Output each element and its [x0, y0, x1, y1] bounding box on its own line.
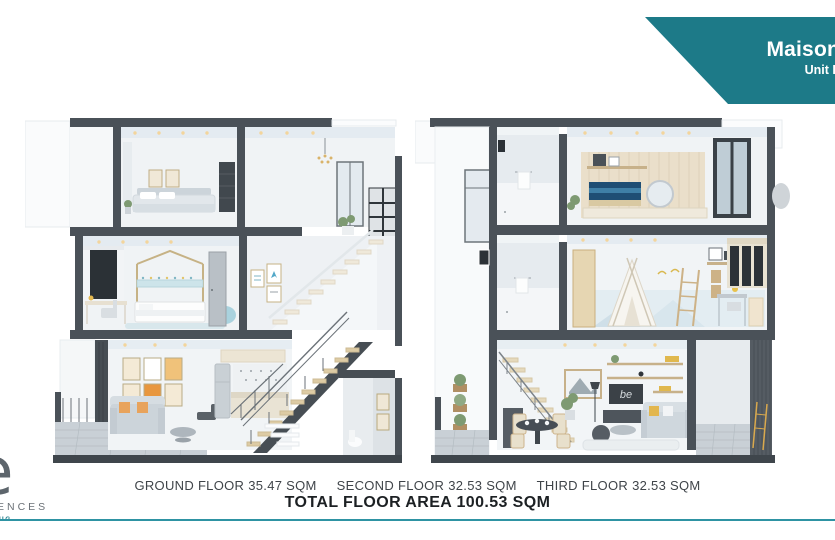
unit-banner-title: Maison: [766, 38, 835, 61]
bathroom-mid: [497, 235, 559, 330]
unit-banner-subtitle: Unit L: [766, 64, 835, 78]
porch-tile: [435, 430, 489, 455]
floorplan-left: [25, 112, 402, 465]
playroom: [567, 235, 767, 330]
third-floor-area: THIRD FLOOR32.53 SQM: [537, 478, 701, 493]
bathroom-top: [497, 127, 559, 225]
left-building-render: [25, 112, 402, 465]
maisonette-floorplan-slide: Maison Unit L: [0, 0, 835, 540]
side-corridor: [696, 340, 750, 455]
bed: [133, 188, 215, 212]
dark-window-curtains: [83, 246, 124, 301]
coffee-table: [170, 427, 196, 437]
floor-areas-line: GROUND FLOOR35.47 SQM SECOND FLOOR32.53 …: [0, 478, 835, 493]
teal-divider-line: [0, 519, 835, 521]
dark-pane-window: [727, 238, 767, 288]
unit-banner: Maison Unit L: [645, 17, 835, 104]
right-base-slab: [431, 455, 775, 463]
brand-logo: e ENCES UG: [0, 444, 110, 523]
right-building-render: be: [415, 112, 795, 465]
right-second-floor: [479, 235, 767, 330]
round-mirror: [647, 181, 673, 207]
right-third-floor: [497, 127, 790, 225]
be-board-text: be: [620, 389, 632, 401]
floorplan-right: be: [415, 112, 795, 465]
media-room: [567, 127, 767, 225]
ground-right-room: [339, 370, 402, 455]
door: [573, 250, 595, 327]
outdoor-chair: [772, 183, 790, 209]
brand-logo-glyph: e: [0, 444, 110, 500]
total-floor-area: TOTAL FLOOR AREA 100.53 SQM: [0, 494, 835, 512]
yellow-pillow: [649, 406, 659, 416]
ground-floor-area: GROUND FLOOR35.47 SQM: [134, 478, 316, 493]
desk-lamp: [89, 296, 94, 301]
stairwell-window: [465, 170, 492, 242]
sofa: [110, 396, 165, 434]
dark-cabinet: [219, 162, 235, 212]
coffee-table: [610, 425, 636, 435]
be-wall-board: be: [609, 384, 643, 404]
sofa: [641, 402, 691, 438]
unit-banner-text: Maison Unit L: [766, 38, 835, 78]
towel: [518, 172, 530, 189]
orange-pillow: [119, 402, 130, 413]
second-floor-area: SECOND FLOOR32.53 SQM: [337, 478, 517, 493]
plant: [124, 200, 132, 208]
slat-wall: [750, 340, 772, 455]
left-second-floor: [75, 230, 395, 330]
door: [209, 252, 226, 326]
brand-logo-residences: ENCES: [0, 501, 110, 513]
orange-pillow: [137, 402, 148, 413]
